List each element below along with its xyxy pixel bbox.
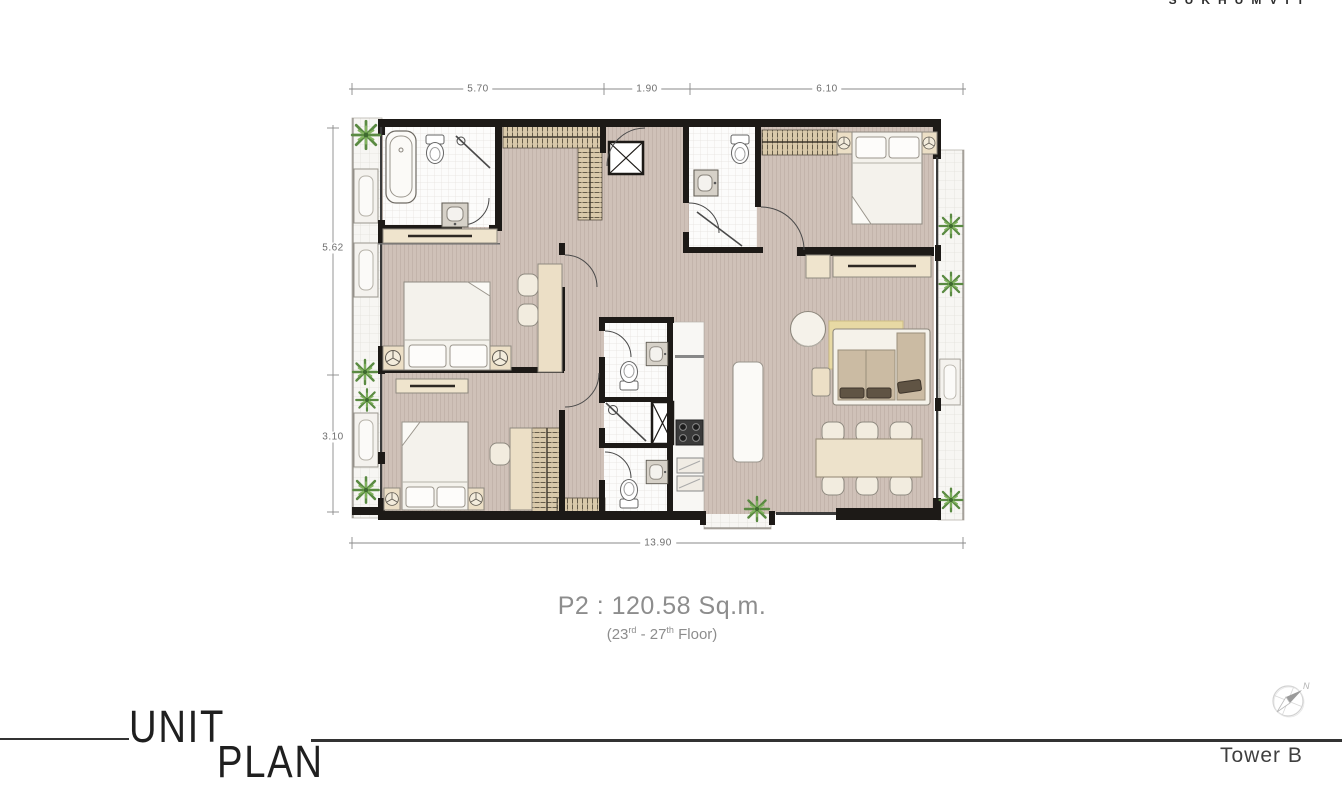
bed-2 <box>404 282 490 370</box>
lamp-icon <box>923 137 935 149</box>
dimension-label-bottom-1: 13.90 <box>640 538 676 549</box>
bathtub-icon <box>386 131 416 203</box>
ac-unit <box>354 243 378 297</box>
floor-text: - 27 <box>636 626 666 643</box>
unit-floor-range: (23rd - 27th Floor) <box>558 625 767 643</box>
bed-3 <box>402 422 468 510</box>
stove-icon <box>676 420 703 445</box>
dimension-label-left-1: 5.62 <box>318 243 347 254</box>
lamp-icon <box>386 493 399 506</box>
vanity-icon <box>442 203 468 227</box>
toilet-icon <box>620 480 638 509</box>
planter-box <box>354 169 378 223</box>
bed-master <box>852 132 922 224</box>
vanity-icon <box>646 460 668 483</box>
toilet-icon <box>731 135 749 164</box>
tower-label: Tower B <box>1220 744 1303 768</box>
kitchen-island <box>733 362 763 462</box>
floor-ordinal: rd <box>628 625 636 635</box>
footer-rule-right <box>311 739 1342 742</box>
tv-console-living <box>806 255 931 278</box>
tv-console-bedroom-3 <box>396 379 468 393</box>
compass-icon <box>1255 672 1335 732</box>
toilet-icon <box>426 135 444 164</box>
unit-plan-page: SUKHUMVIT <box>0 0 1342 754</box>
lamp-icon <box>386 351 401 366</box>
vanity-console <box>383 229 497 243</box>
balcony-right <box>938 150 964 520</box>
ac-unit <box>940 359 960 405</box>
dimension-label-top-2: 1.90 <box>632 84 661 95</box>
shaft-icon <box>609 142 643 174</box>
sofa <box>833 329 930 405</box>
floor-text: (23 <box>607 626 629 643</box>
dimension-label-top-1: 5.70 <box>463 84 492 95</box>
footer-word-unit: UNIT <box>129 701 225 753</box>
toilet-icon <box>620 362 638 391</box>
unit-title: P2 : 120.58 Sq.m. <box>558 592 767 621</box>
footer-rule-left <box>0 738 129 740</box>
floor-text: Floor) <box>674 626 717 643</box>
lamp-icon <box>470 493 483 506</box>
lamp-icon <box>493 351 508 366</box>
armchair <box>791 312 826 347</box>
compass-north-label: N <box>1303 681 1310 691</box>
closet-master <box>762 130 838 155</box>
footer-word-plan: PLAN <box>217 736 324 788</box>
vanity-icon <box>694 170 718 196</box>
lamp-icon <box>838 137 850 149</box>
vanity-icon <box>646 342 668 365</box>
dimension-label-left-2: 3.10 <box>318 432 347 443</box>
side-table <box>812 368 830 396</box>
unit-title-block: P2 : 120.58 Sq.m. (23rd - 27th Floor) <box>558 592 767 643</box>
balcony-left <box>352 118 382 518</box>
dimension-label-top-3: 6.10 <box>812 84 841 95</box>
planter-box <box>354 413 378 467</box>
dining-table <box>816 439 922 477</box>
